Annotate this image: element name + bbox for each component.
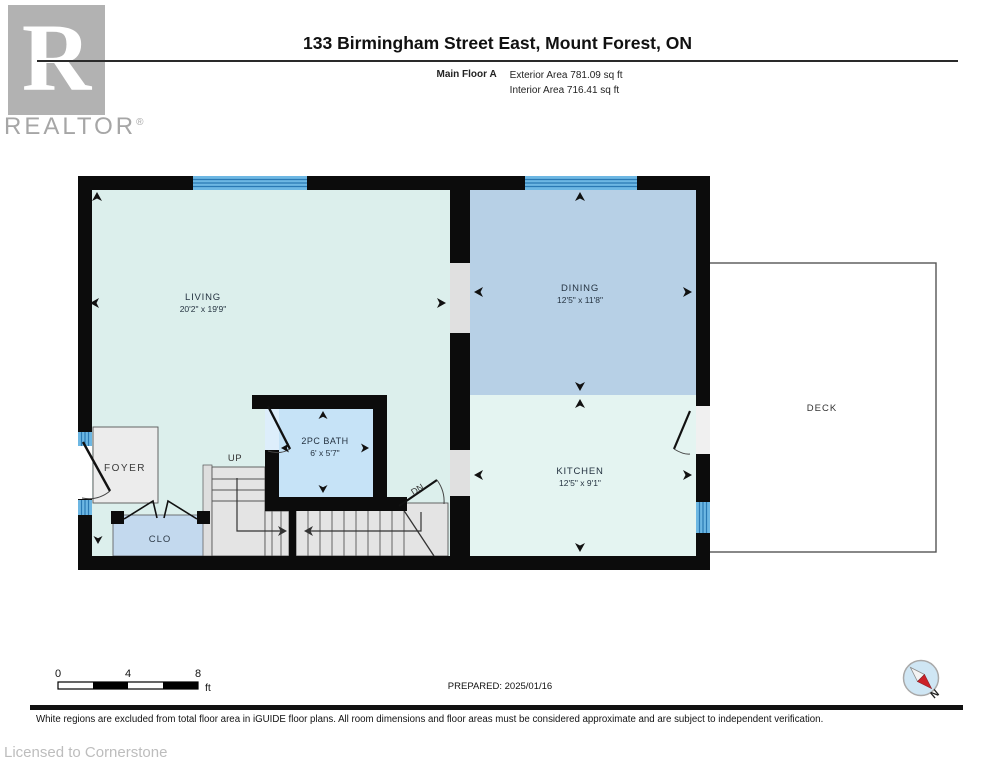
dining-label: DINING [561,283,599,294]
bath-label: 2PC BATH [301,436,348,446]
floor-plan-drawing: DECK [0,0,995,768]
compass: N [904,661,942,702]
footer-divider [30,705,963,710]
closet-label: CLO [149,534,172,545]
scale-4: 4 [125,668,131,680]
disclaimer-text: White regions are excluded from total fl… [36,714,966,725]
deck-label: DECK [807,403,837,414]
stairs-up-label: UP [228,453,242,464]
floor-plan-page: { "header": { "logo_letter": "R", "brand… [0,0,995,768]
living-dims: 20'2" x 19'9" [180,304,227,314]
prepared-date: PREPARED: 2025/01/16 [448,681,552,692]
hall-kitchen-opening [450,450,470,496]
compass-n-label: N [928,687,942,701]
scale-unit: ft [205,682,211,694]
living-dining-opening [450,263,470,333]
scale-8: 8 [195,668,201,680]
deck: DECK [706,263,936,552]
living-window [193,176,307,190]
kitchen-window [696,502,710,533]
scale-0: 0 [55,668,61,680]
living-label: LIVING [185,292,221,303]
dining-dims: 12'5" x 11'8" [557,295,603,305]
foyer-window-lower [78,500,92,515]
deck-door-gap [696,406,710,454]
bath-dims: 6' x 5'7" [310,448,339,458]
dining-window [525,176,637,190]
kitchen-label: KITCHEN [556,466,603,477]
licensed-to: Licensed to Cornerstone [4,744,167,761]
foyer-label: FOYER [104,463,146,474]
scale-bar: 0 4 8 ft [55,668,211,694]
kitchen-dims: 12'5" x 9'1" [559,478,601,488]
